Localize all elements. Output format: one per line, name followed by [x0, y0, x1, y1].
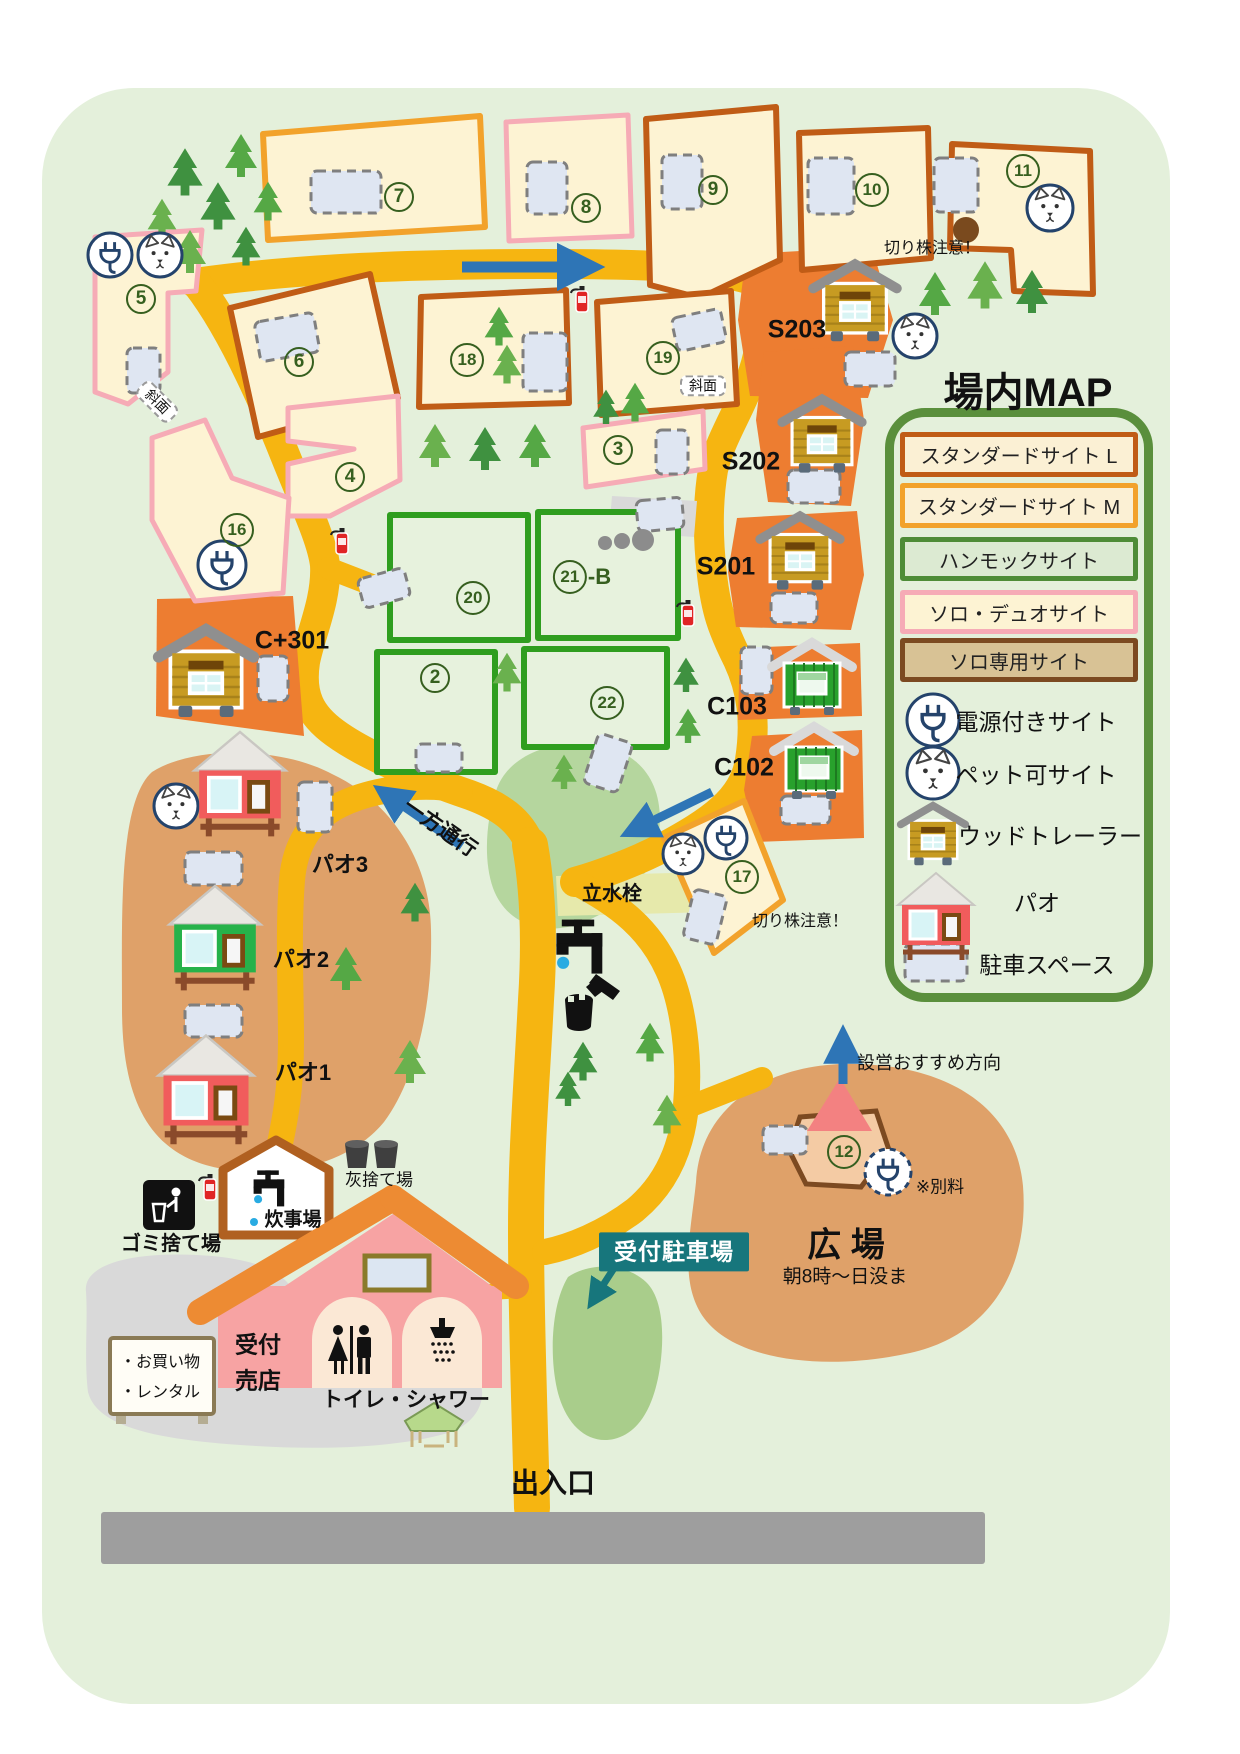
parking-space	[185, 852, 242, 885]
legend-pet-label: ペット可サイト	[956, 756, 1117, 790]
stone	[632, 529, 654, 551]
site-c103-label: C103	[707, 693, 767, 721]
pao1-label: パオ1	[275, 1061, 331, 1085]
parking-space	[788, 470, 840, 503]
power-plug-icon	[865, 1149, 911, 1195]
legend-solo-only-label: ソロ専用サイト	[949, 646, 1089, 675]
info-sign-board	[110, 1338, 214, 1424]
site-marker-5: 5	[126, 284, 156, 314]
dog-icon	[663, 834, 703, 874]
site-marker-11: 11	[1006, 154, 1040, 188]
power-plug-icon	[198, 541, 246, 589]
site-marker-18: 18	[450, 343, 484, 377]
cooking-area-label: 炊事場	[264, 1211, 321, 1232]
tree-stump-icon	[953, 217, 979, 243]
legend-solo-duo-label: ソロ・デュオサイト	[929, 598, 1109, 627]
legend-trailer-label: ウッドトレーラー	[958, 817, 1142, 851]
trash-area-label: ゴミ捨て場	[121, 1233, 221, 1255]
ash-area-label: 灰捨て場	[345, 1172, 413, 1191]
dog-icon	[1027, 185, 1073, 231]
site-s202-label: S202	[722, 448, 780, 476]
site-marker-19: 19	[646, 341, 680, 375]
reception-parking-badge: 受付駐車場	[599, 1232, 749, 1271]
legend-solo-only: ソロ専用サイト	[900, 638, 1138, 682]
legend-pao-label: パオ	[1014, 884, 1060, 918]
power-plug-icon	[88, 233, 132, 277]
parking-space	[636, 497, 685, 532]
site-marker-21-B: 21-B	[553, 560, 611, 594]
parking-space	[311, 171, 381, 213]
site-marker-7: 7	[384, 182, 414, 212]
parking-space	[808, 158, 854, 214]
legend-power-label: 電源付きサイト	[956, 703, 1117, 737]
plaza-label: 広 場	[807, 1227, 884, 1264]
campground-map: スタンダードサイト L スタンダードサイト M ハンモックサイト ソロ・デュオサ…	[0, 0, 1240, 1754]
site-marker-17: 17	[725, 860, 759, 894]
parking-space	[771, 593, 817, 623]
water-drop-icon	[250, 1218, 258, 1226]
site-marker-22: 22	[590, 686, 624, 720]
plaza-hours: 朝8時～日没ま	[783, 1268, 908, 1289]
parking-space	[527, 162, 567, 214]
map-title: 場内MAP	[944, 371, 1113, 415]
sign-rental: ・レンタル	[120, 1384, 200, 1402]
entrance-label: 出入口	[511, 1469, 595, 1500]
legend-hammock: ハンモックサイト	[900, 537, 1138, 581]
site-marker-10: 10	[855, 173, 889, 207]
shop-label: 売店	[235, 1368, 281, 1393]
dog-icon	[893, 314, 937, 358]
stump-warning-bottom: 切り株注意！	[752, 913, 848, 931]
legend-standard-m-label: スタンダードサイト M	[918, 491, 1120, 520]
site-marker-4: 4	[335, 462, 365, 492]
site-c102-label: C102	[714, 754, 774, 782]
site-marker-8: 8	[571, 193, 601, 223]
parking-space	[523, 333, 567, 391]
shower-arch	[402, 1297, 482, 1388]
reception-label: 受付	[235, 1332, 281, 1357]
parking-space	[656, 430, 688, 474]
site-marker-3: 3	[603, 435, 633, 465]
parking-space	[416, 744, 462, 772]
parking-space	[662, 155, 702, 209]
public-road-bar	[101, 1512, 985, 1564]
parking-space	[845, 352, 895, 386]
road-main	[526, 845, 538, 1508]
legend-standard-l: スタンダードサイト L	[900, 432, 1138, 477]
extra-fee-note: ※別料	[916, 1179, 964, 1198]
parking-space	[763, 1126, 807, 1154]
legend-hammock-label: ハンモックサイト	[939, 545, 1099, 574]
pao3-label: パオ3	[312, 853, 368, 877]
site-s201-label: S201	[697, 553, 755, 581]
parking-space	[298, 782, 332, 832]
site-c301-label: C+301	[255, 627, 329, 655]
stump-warning-top: 切り株注意！	[884, 240, 980, 258]
power-plug-icon	[705, 817, 747, 859]
dog-icon	[154, 784, 198, 828]
standpipe-label: 立水栓	[582, 883, 642, 905]
stone	[598, 536, 612, 550]
site-marker-20: 20	[456, 581, 490, 615]
site-marker-16: 16	[220, 513, 254, 547]
site-8-shape	[506, 115, 632, 241]
toilet-shower-label: トイレ・シャワー	[322, 1388, 490, 1411]
legend-standard-l-label: スタンダードサイト L	[921, 440, 1118, 469]
dog-icon	[138, 233, 182, 277]
gable-window	[365, 1256, 429, 1290]
setup-direction-label: 設営おすすめ方向	[857, 1054, 1001, 1074]
site-marker-6: 6	[284, 347, 314, 377]
parking-space	[258, 656, 288, 701]
legend-solo-duo: ソロ・デュオサイト	[900, 590, 1138, 634]
slope-note-site19: 斜面	[680, 375, 726, 396]
pao2-label: パオ2	[273, 948, 329, 972]
parking-space	[934, 158, 978, 212]
parking-space	[741, 647, 772, 694]
site-marker-12: 12	[827, 1135, 861, 1169]
sign-shopping: ・お買い物	[120, 1354, 200, 1372]
legend-parking-label: 駐車スペース	[979, 946, 1114, 980]
legend-standard-m: スタンダードサイト M	[900, 483, 1138, 528]
site-marker-9: 9	[698, 175, 728, 205]
parking-space	[185, 1005, 242, 1037]
site-20-shape	[390, 515, 528, 640]
trash-disposal-icon	[143, 1180, 195, 1230]
stone	[614, 533, 630, 549]
site-marker-2: 2	[420, 663, 450, 693]
site-s203-label: S203	[768, 316, 826, 344]
parking-space	[781, 796, 830, 824]
